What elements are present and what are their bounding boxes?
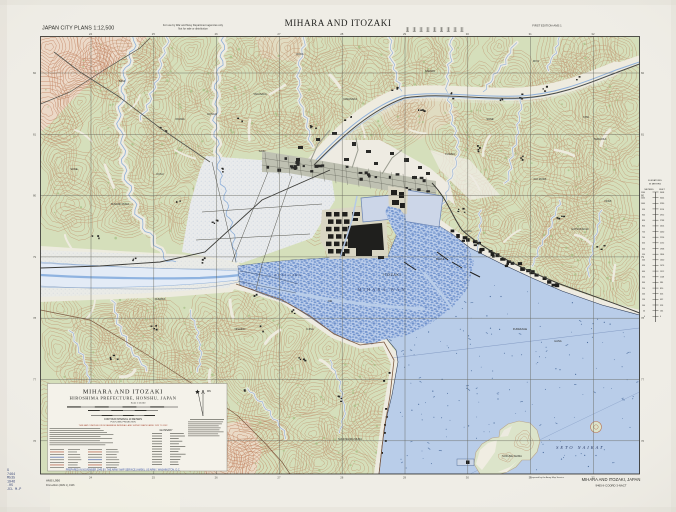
svg-text:UJINA: UJINA — [306, 327, 314, 331]
svg-text:81: 81 — [33, 132, 37, 136]
svg-text:2788: 2788 — [660, 220, 664, 222]
svg-text:650: 650 — [642, 243, 645, 245]
svg-text:80: 80 — [33, 194, 37, 198]
svg-text:24: 24 — [89, 32, 93, 36]
svg-text:1148: 1148 — [660, 277, 664, 279]
svg-text:GLOSSARY: GLOSSARY — [159, 429, 173, 432]
svg-text:28: 28 — [340, 32, 344, 36]
svg-text:0: 0 — [660, 316, 661, 318]
svg-text:25: 25 — [152, 32, 156, 36]
svg-text:JAPAN CITY PLANS 1:12,500: JAPAN CITY PLANS 1:12,500 — [42, 26, 114, 32]
svg-text:164: 164 — [660, 310, 663, 312]
svg-text:2952: 2952 — [660, 214, 664, 216]
svg-text:1640: 1640 — [660, 260, 664, 262]
svg-text:NARIWA: NARIWA — [425, 69, 436, 73]
svg-text:1968: 1968 — [660, 248, 664, 250]
svg-text:150: 150 — [642, 299, 645, 301]
svg-text:1000: 1000 — [641, 203, 645, 205]
svg-text:30: 30 — [466, 476, 470, 480]
svg-text:SUNAMI MURA: SUNAMI MURA — [111, 202, 130, 206]
svg-text:30: 30 — [466, 32, 470, 36]
svg-text:1100: 1100 — [641, 192, 645, 194]
svg-text:29: 29 — [403, 32, 407, 36]
svg-text:MIHARA AND ITOZAKI, JAPAN: MIHARA AND ITOZAKI, JAPAN — [582, 477, 641, 482]
svg-text:AMS L990: AMS L990 — [46, 479, 60, 483]
svg-text:OURA: OURA — [464, 229, 472, 233]
svg-text:Not for sale or distribution: Not for sale or distribution — [178, 26, 208, 30]
svg-text:JCL M-P: JCL M-P — [7, 488, 21, 492]
svg-text:9465-II-COORD 3-NACT: 9465-II-COORD 3-NACT — [596, 484, 627, 488]
svg-text:400: 400 — [642, 271, 645, 273]
svg-text:82: 82 — [33, 71, 37, 75]
svg-text:HATSUKAICHI: HATSUKAICHI — [571, 227, 589, 231]
svg-text:77: 77 — [641, 378, 645, 382]
svg-text:TAKASAKA: TAKASAKA — [253, 92, 267, 96]
svg-text:27: 27 — [277, 476, 281, 480]
svg-text:MIHARA AND ITOZAKI: MIHARA AND ITOZAKI — [83, 389, 163, 396]
svg-text:KUI MURA: KUI MURA — [534, 177, 547, 181]
svg-text:Prepared by the Army Map Servi: Prepared by the Army Map Service — [530, 476, 565, 479]
svg-text:2624: 2624 — [660, 226, 664, 228]
svg-text:MIYA: MIYA — [533, 59, 539, 63]
svg-text:MIHARA WAN: MIHARA WAN — [357, 287, 406, 292]
svg-text:Scale 1:12,500: Scale 1:12,500 — [131, 403, 146, 405]
svg-text:2296: 2296 — [660, 237, 664, 239]
svg-text:81: 81 — [641, 132, 645, 136]
svg-text:2460: 2460 — [660, 231, 664, 233]
svg-text:76: 76 — [33, 439, 37, 443]
svg-text:492: 492 — [660, 299, 663, 301]
svg-text:26: 26 — [215, 476, 219, 480]
svg-text:For use by War and Navy Depart: For use by War and Navy Department agenc… — [163, 23, 224, 27]
svg-text:2132: 2132 — [660, 243, 664, 245]
svg-text:YAMANAKA: YAMANAKA — [343, 97, 357, 101]
svg-text:TANI: TANI — [583, 115, 589, 119]
svg-text:450: 450 — [642, 265, 645, 267]
svg-text:SETO NAIKAI: SETO NAIKAI — [556, 445, 604, 450]
svg-text:32: 32 — [591, 32, 595, 36]
svg-text:KODA: KODA — [296, 52, 304, 56]
svg-text:31: 31 — [529, 32, 533, 36]
svg-text:0: 0 — [644, 316, 645, 318]
svg-text:200: 200 — [642, 294, 645, 296]
svg-text:328: 328 — [660, 305, 663, 307]
svg-text:950: 950 — [642, 209, 645, 211]
svg-text:3116: 3116 — [660, 209, 664, 211]
svg-text:100: 100 — [642, 305, 645, 307]
svg-text:ELEVATIONS: ELEVATIONS — [648, 179, 662, 182]
svg-text:MN: MN — [207, 390, 211, 393]
svg-text:OKI: OKI — [328, 299, 333, 303]
svg-text:656: 656 — [660, 294, 663, 296]
svg-text:1476: 1476 — [660, 265, 664, 267]
svg-text:1312: 1312 — [660, 271, 664, 273]
svg-text:ITOZAKI: ITOZAKI — [383, 273, 402, 277]
svg-text:OKAWA: OKAWA — [175, 117, 185, 121]
svg-text:79: 79 — [33, 255, 37, 259]
svg-text:750: 750 — [642, 231, 645, 233]
svg-text:1050: 1050 — [641, 198, 645, 200]
svg-text:FEET: FEET — [659, 189, 665, 191]
svg-text:FUNAKI: FUNAKI — [445, 152, 455, 156]
svg-text:HONGO: HONGO — [207, 112, 217, 116]
svg-text:TERAOKA: TERAOKA — [594, 137, 607, 141]
svg-text:SUNOSHIMA MURA: SUNOSHIMA MURA — [338, 437, 362, 441]
svg-text:POLYCONIC PROJECTION: POLYCONIC PROJECTION — [110, 422, 136, 424]
svg-text:MIHARA AND ITOZAKI: MIHARA AND ITOZAKI — [285, 18, 392, 28]
svg-text:850: 850 — [642, 220, 645, 222]
svg-text:NISHINO: NISHINO — [235, 327, 246, 331]
svg-text:29: 29 — [403, 476, 407, 480]
svg-text:25: 25 — [152, 476, 156, 480]
svg-text:SAIKI: SAIKI — [259, 149, 266, 153]
svg-text:NUMATA: NUMATA — [155, 297, 166, 301]
svg-text:900: 900 — [642, 214, 645, 216]
svg-text:FUDEKAGE: FUDEKAGE — [513, 327, 528, 331]
svg-text:KAMI: KAMI — [119, 79, 126, 83]
svg-text:82: 82 — [641, 71, 645, 75]
svg-text:CONTOUR INTERVAL 10 METERS: CONTOUR INTERVAL 10 METERS — [104, 418, 142, 421]
svg-text:FIRST EDITION-AMS 1: FIRST EDITION-AMS 1 — [532, 24, 562, 28]
svg-text:700: 700 — [642, 237, 645, 239]
svg-text:METERS: METERS — [644, 189, 654, 191]
svg-text:26: 26 — [215, 32, 219, 36]
svg-text:NUTA GAWA: NUTA GAWA — [273, 273, 301, 277]
svg-text:KUSU: KUSU — [156, 172, 163, 176]
svg-text:28: 28 — [340, 476, 344, 480]
svg-text:THIS MAP COMPILED FROM JAPANES: THIS MAP COMPILED FROM JAPANESE IMPERIAL… — [79, 424, 169, 427]
svg-text:77: 77 — [33, 378, 37, 382]
svg-text:350: 350 — [642, 277, 645, 279]
svg-text:SUGE: SUGE — [70, 167, 78, 171]
svg-text:IN METERS: IN METERS — [649, 184, 661, 186]
svg-text:550: 550 — [642, 254, 645, 256]
svg-text:3280: 3280 — [660, 203, 664, 205]
svg-text:600: 600 — [642, 248, 645, 250]
svg-text:984: 984 — [660, 282, 663, 284]
svg-text:78: 78 — [33, 316, 37, 320]
svg-text:27: 27 — [277, 32, 281, 36]
svg-text:50: 50 — [643, 310, 645, 312]
svg-text:3608: 3608 — [660, 192, 664, 194]
svg-text:24: 24 — [89, 476, 93, 480]
svg-text:NOMI: NOMI — [605, 199, 612, 203]
svg-text:820: 820 — [660, 288, 663, 290]
svg-text:First edition (AMS 1), 1946: First edition (AMS 1), 1946 — [46, 484, 75, 487]
svg-text:500: 500 — [642, 260, 645, 262]
svg-text:300: 300 — [642, 282, 645, 284]
svg-text:SONE: SONE — [486, 117, 494, 121]
svg-text:SUKUNE SHIMA: SUKUNE SHIMA — [502, 454, 522, 458]
svg-text:1804: 1804 — [660, 254, 664, 256]
svg-text:3444: 3444 — [660, 198, 664, 200]
svg-text:76: 76 — [641, 439, 645, 443]
svg-text:MACHI: MACHI — [436, 257, 445, 261]
svg-text:250: 250 — [642, 288, 645, 290]
svg-text:HANA: HANA — [554, 339, 561, 343]
svg-text:800: 800 — [642, 226, 645, 228]
svg-text:PREPARED IN NOVEMBER 1945 BY T: PREPARED IN NOVEMBER 1945 BY THE ARMY MA… — [66, 469, 181, 472]
